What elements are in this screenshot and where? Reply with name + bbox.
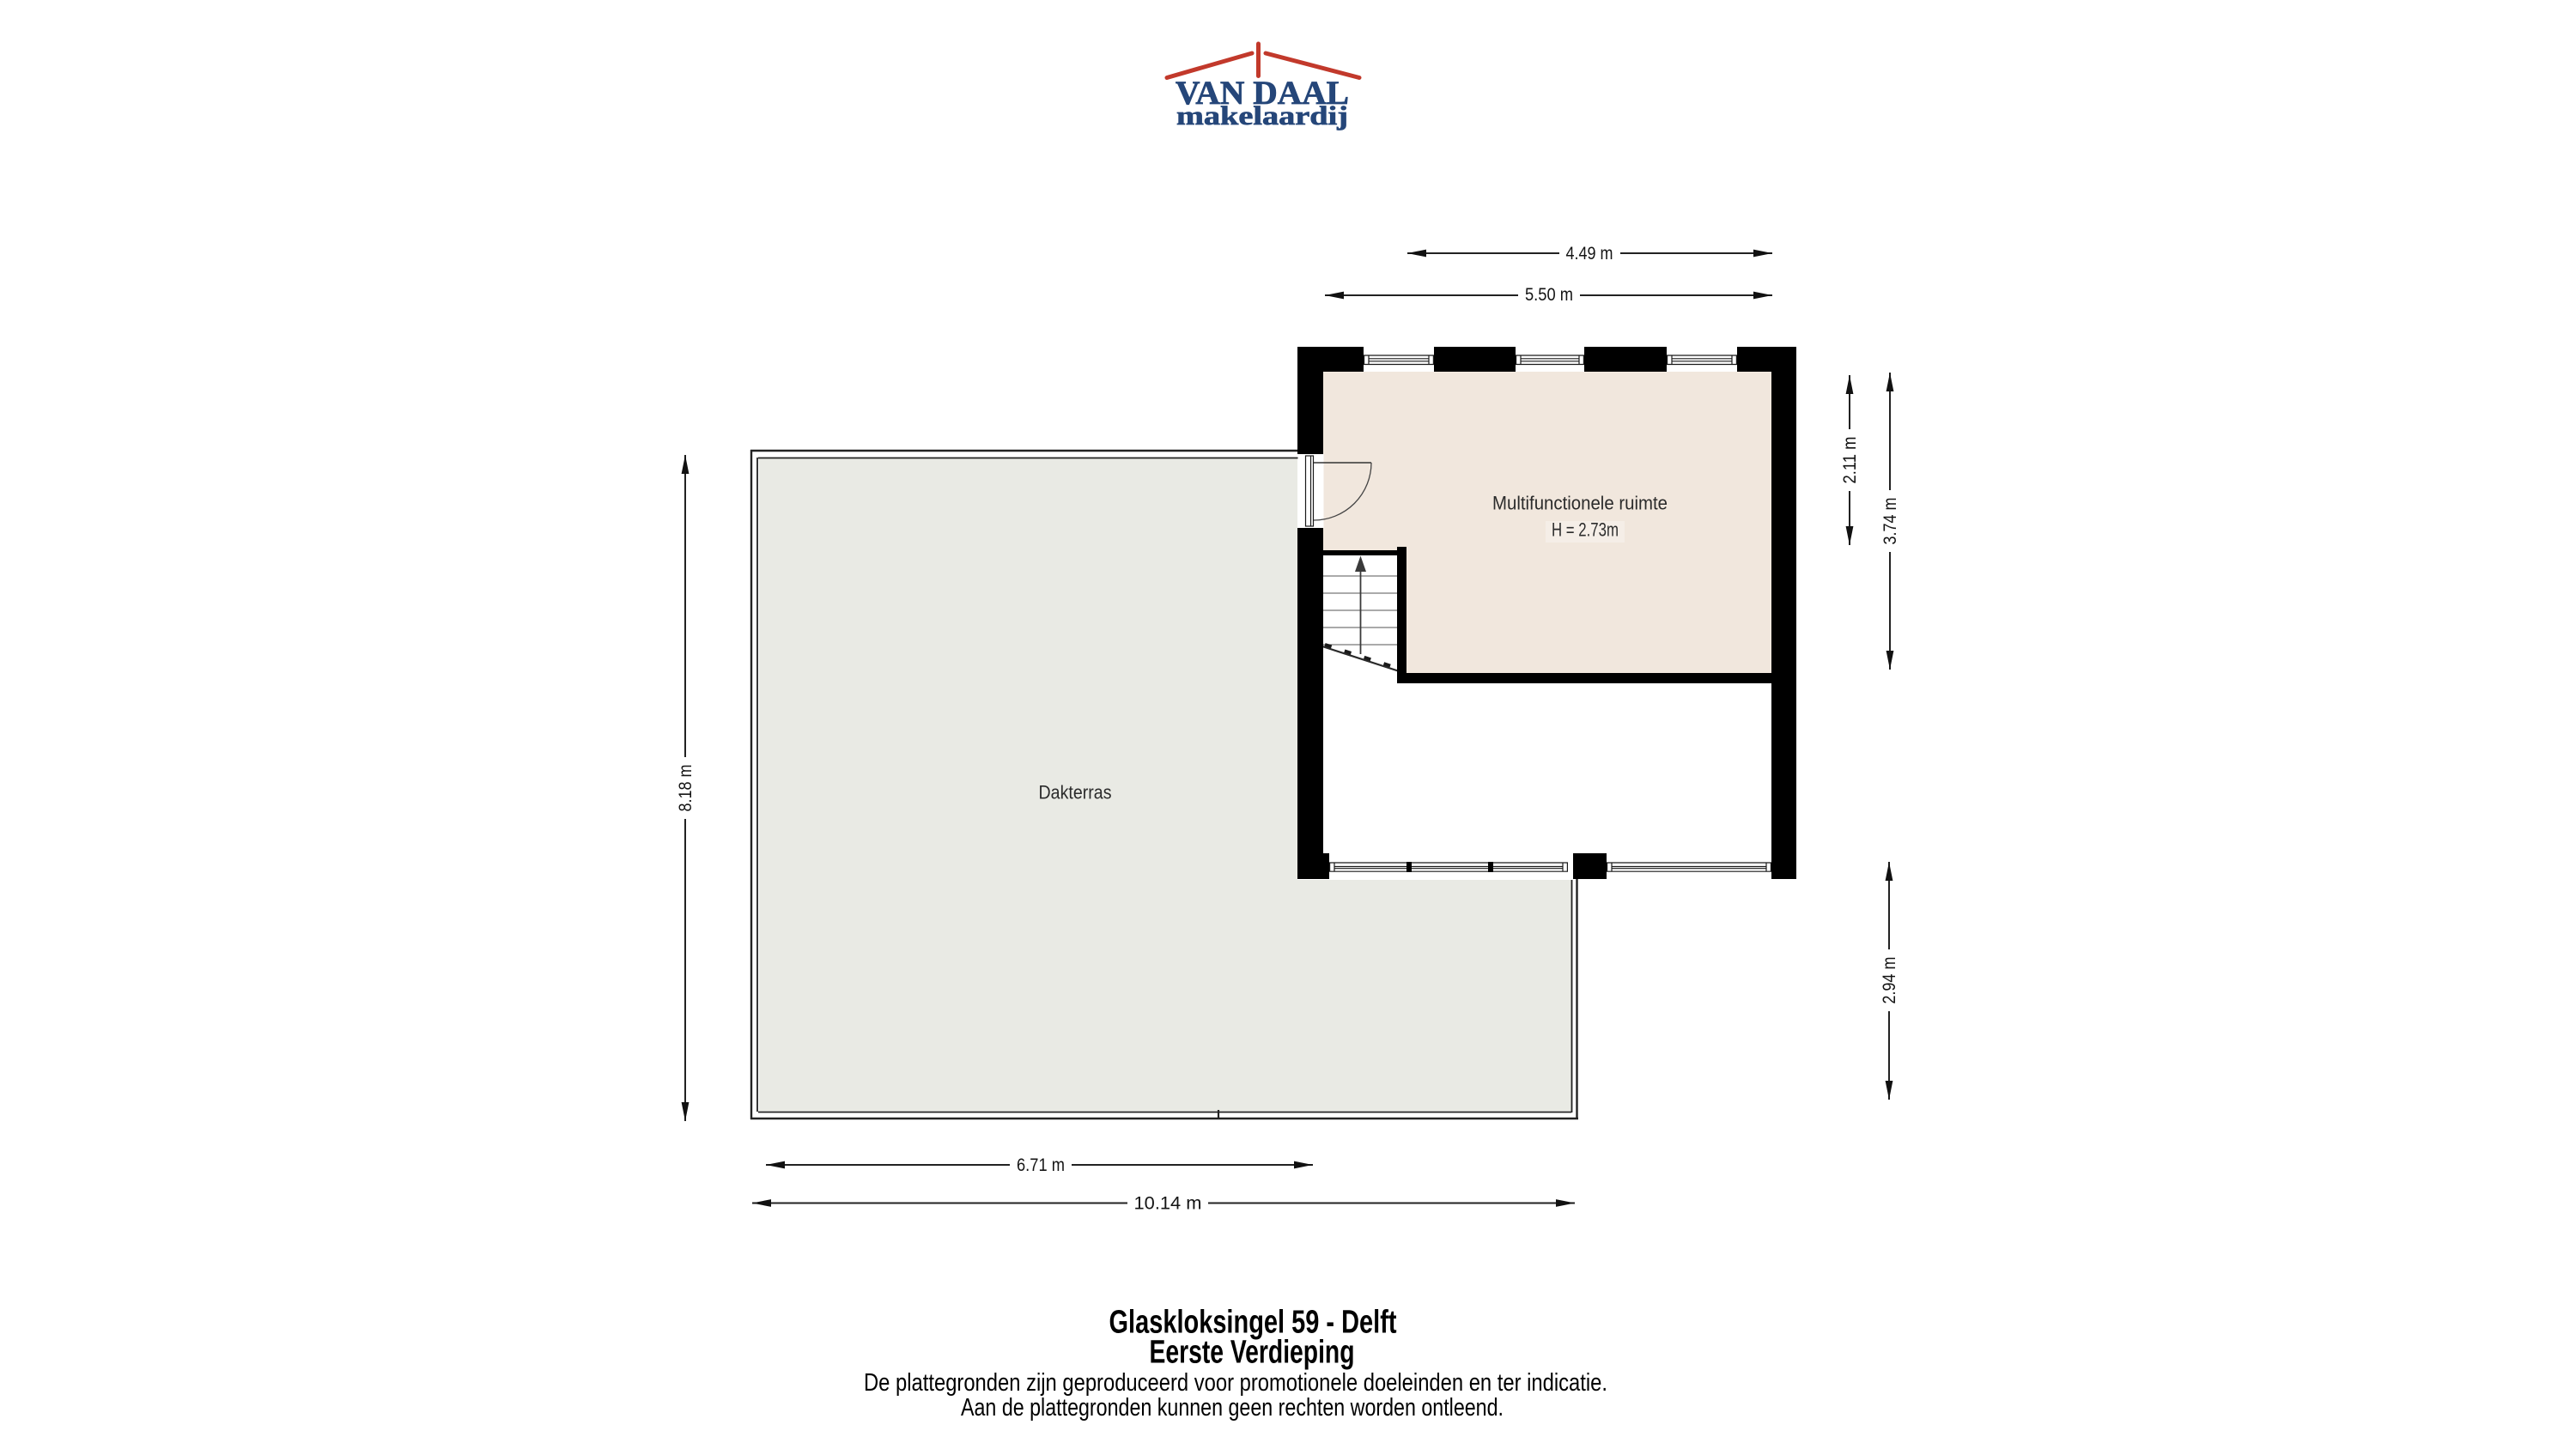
svg-text:6.71 m: 6.71 m <box>1017 1155 1065 1175</box>
svg-text:5.50 m: 5.50 m <box>1525 285 1573 305</box>
svg-text:3.74 m: 3.74 m <box>1880 498 1900 545</box>
svg-text:Aan de plattegronden kunnen ge: Aan de plattegronden kunnen geen rechten… <box>961 1394 1504 1422</box>
svg-text:10.14 m: 10.14 m <box>1134 1194 1202 1214</box>
svg-text:8.18 m: 8.18 m <box>676 765 696 812</box>
svg-text:H = 2.73m: H = 2.73m <box>1552 519 1619 541</box>
svg-text:De plattegronden zijn geproduc: De plattegronden zijn geproduceerd voor … <box>864 1369 1607 1397</box>
svg-text:Multifunctionele ruimte: Multifunctionele ruimte <box>1492 493 1668 514</box>
svg-text:Eerste Verdieping: Eerste Verdieping <box>1150 1335 1355 1371</box>
svg-text:2.11 m: 2.11 m <box>1840 437 1860 484</box>
svg-text:4.49 m: 4.49 m <box>1566 244 1613 264</box>
svg-text:Dakterras: Dakterras <box>1039 782 1112 803</box>
svg-text:makelaardij: makelaardij <box>1176 100 1348 130</box>
svg-text:2.94 m: 2.94 m <box>1880 957 1899 1004</box>
